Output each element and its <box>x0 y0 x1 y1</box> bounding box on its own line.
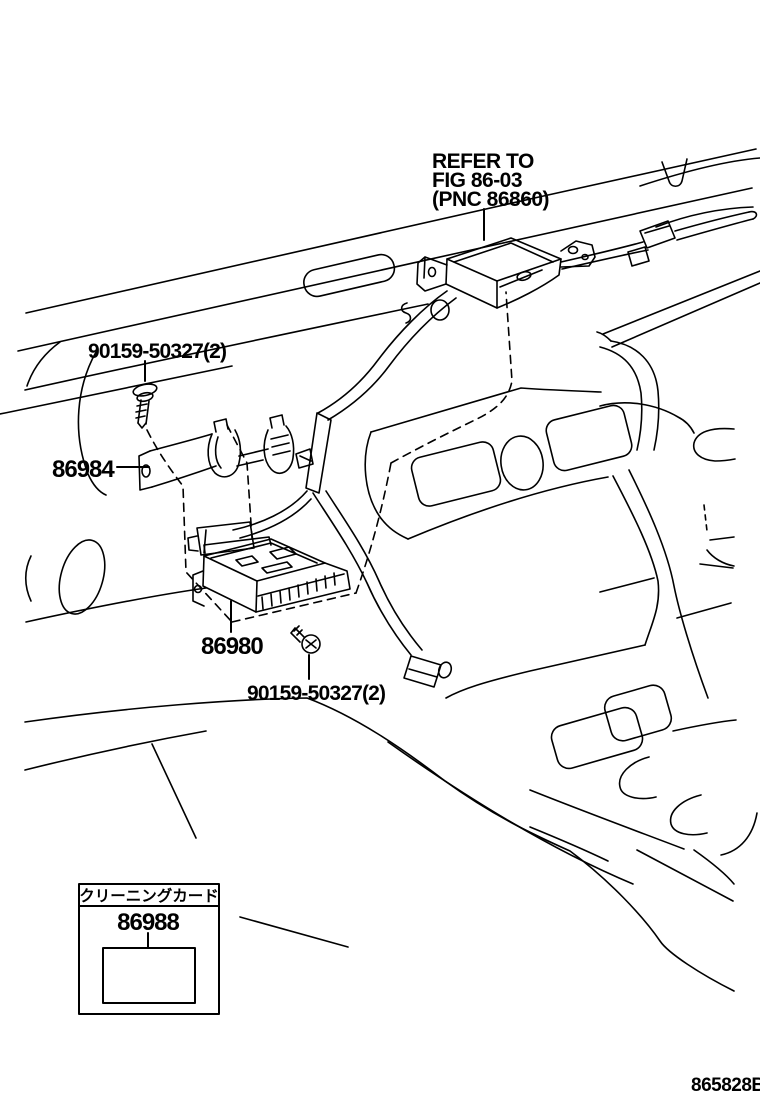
defroster-vent <box>301 252 397 299</box>
bracket-label: 86984 <box>52 456 115 483</box>
glovebox-pocket <box>694 429 735 461</box>
antenna-plug <box>404 656 441 687</box>
antenna-rod-tip <box>749 212 756 219</box>
center-console <box>388 470 757 901</box>
cable-sleeve <box>306 413 331 493</box>
receiver-unit-86980 <box>193 537 350 632</box>
cup-holder <box>620 757 656 799</box>
cup-holder <box>671 795 707 835</box>
cable-clip <box>402 303 411 323</box>
legend-title: クリーニングカード <box>79 886 219 905</box>
stack-dial <box>497 433 546 492</box>
stack-vent-right <box>544 403 634 473</box>
defroster-clip <box>662 159 687 186</box>
bracket-clamp <box>264 426 293 473</box>
console-box <box>602 682 674 743</box>
screw-lower-label: 90159-50327(2) <box>247 682 385 705</box>
legend-part-label: 86988 <box>117 909 179 936</box>
amplifier-left-tab <box>417 257 447 291</box>
panel-seam-line <box>240 917 348 947</box>
bracket-clamp <box>208 430 240 477</box>
parts-diagram: REFER TO FIG 86-03 (PNC 86860) 90159-503… <box>0 0 760 1112</box>
screw-upper <box>132 361 158 428</box>
stack-vent-left <box>409 440 503 509</box>
console-tray <box>549 705 646 772</box>
figure-code: 865828B <box>691 1075 760 1096</box>
refer-note-line-3: (PNC 86860) <box>432 188 549 211</box>
screw-upper-label: 90159-50327(2) <box>88 340 226 363</box>
screw-lower <box>291 626 320 679</box>
center-stack <box>365 332 735 539</box>
antenna-cable-right <box>561 207 760 347</box>
cleaning-card-shape <box>103 948 195 1003</box>
cable-connector <box>640 221 675 248</box>
receiver-label: 86980 <box>201 633 263 660</box>
parts-diagram-page: REFER TO FIG 86-03 (PNC 86860) 90159-503… <box>0 0 760 1112</box>
panel-seam-line <box>152 744 196 838</box>
